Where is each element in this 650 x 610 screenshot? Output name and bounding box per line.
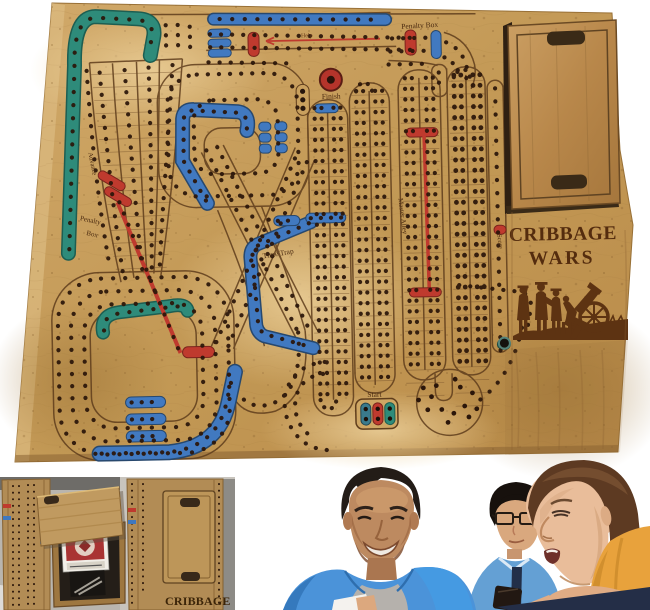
svg-text:Help: Help bbox=[301, 33, 313, 39]
svg-text:CRIBBAGE: CRIBBAGE bbox=[165, 594, 231, 608]
svg-text:Finish: Finish bbox=[322, 92, 341, 101]
svg-text:Start: Start bbox=[367, 390, 382, 399]
svg-text:WARS: WARS bbox=[528, 247, 595, 269]
svg-text:CRIBBAGE: CRIBBAGE bbox=[509, 223, 617, 246]
